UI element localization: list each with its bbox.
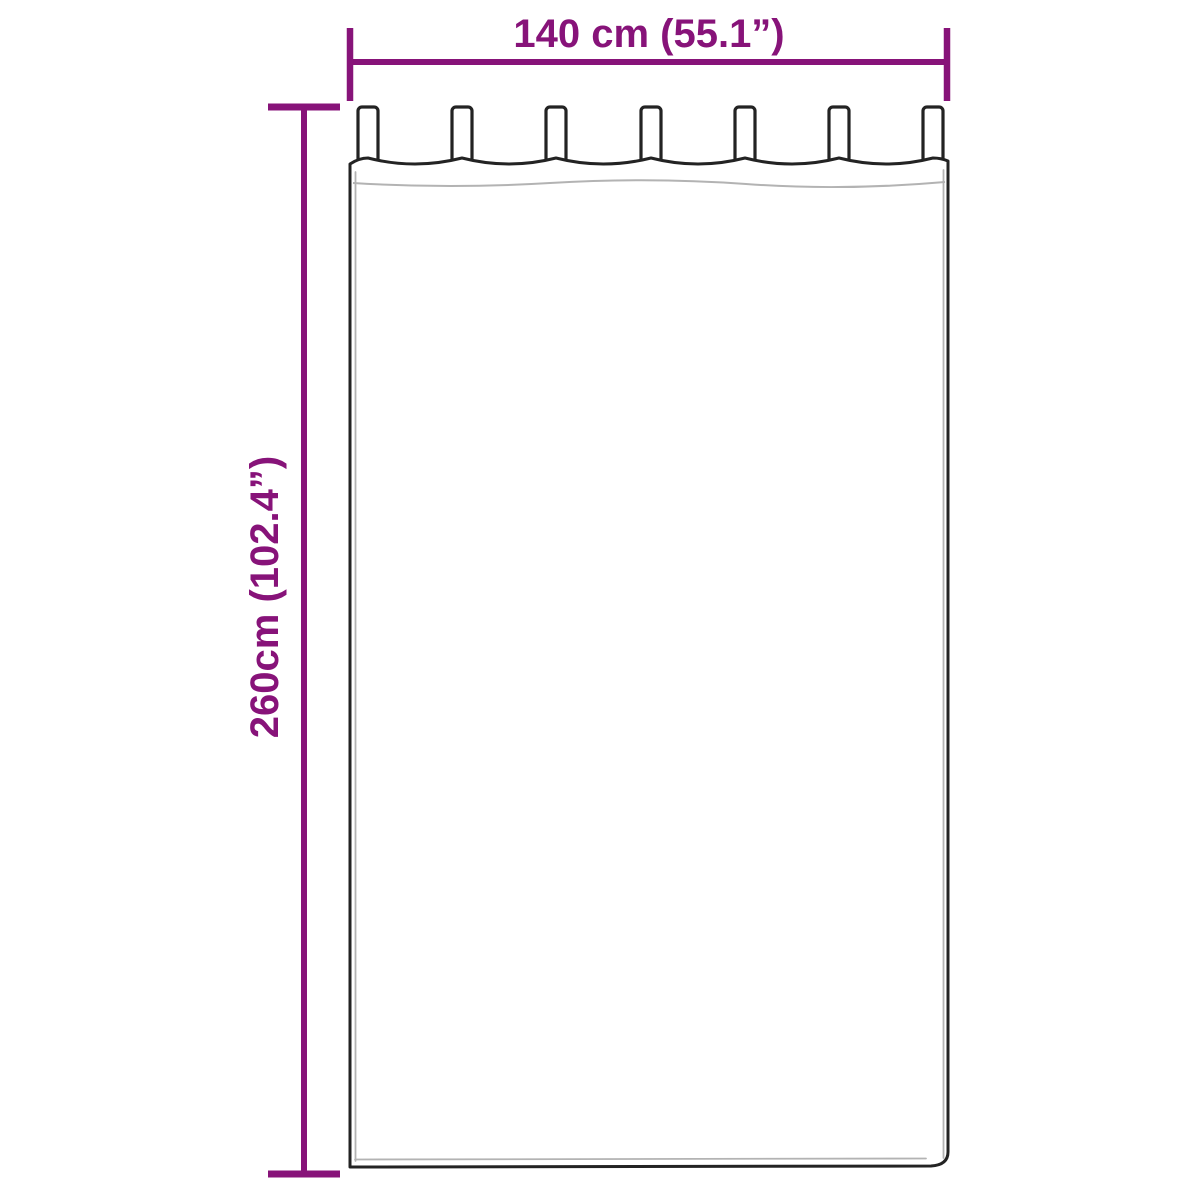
diagram-canvas: 140 cm (55.1”) 260cm (102.4”) [0, 0, 1200, 1200]
curtain-dimension-diagram [0, 0, 1200, 1200]
curtain-drawing [350, 107, 948, 1167]
width-dimension-label: 140 cm (55.1”) [350, 14, 948, 54]
curtain-panel [350, 158, 948, 1167]
bottom-hem-seam-line [355, 1159, 926, 1160]
height-dimension-label: 260cm (102.4”) [245, 456, 285, 738]
